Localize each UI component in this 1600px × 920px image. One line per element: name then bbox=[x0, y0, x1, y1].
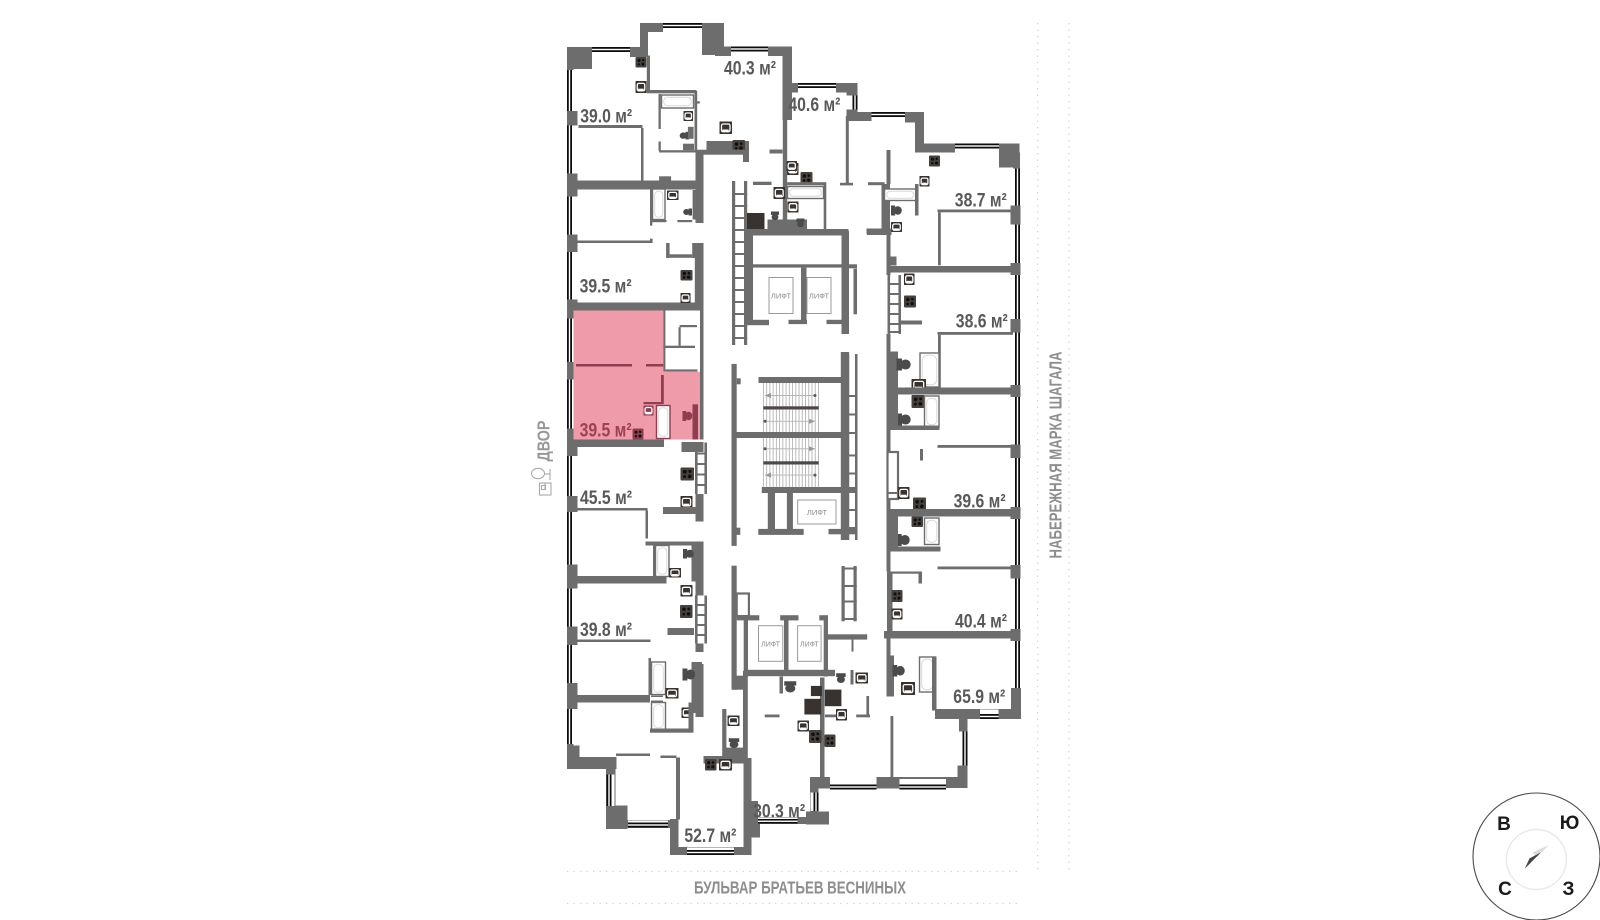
svg-text:38.7 м²: 38.7 м² bbox=[955, 189, 1007, 211]
svg-text:40.4 м²: 40.4 м² bbox=[955, 611, 1007, 633]
svg-text:39.0 м²: 39.0 м² bbox=[580, 106, 632, 128]
svg-text:65.9 м²: 65.9 м² bbox=[953, 686, 1005, 708]
svg-text:ЛИФТ: ЛИФТ bbox=[800, 642, 820, 649]
svg-text:52.7 м²: 52.7 м² bbox=[684, 825, 736, 847]
svg-text:ЛИФТ: ЛИФТ bbox=[761, 642, 781, 649]
svg-text:39.5 м²: 39.5 м² bbox=[580, 276, 632, 298]
svg-text:ДВОР: ДВОР bbox=[534, 420, 554, 461]
svg-text:39.5 м²: 39.5 м² bbox=[580, 420, 632, 442]
svg-text:С: С bbox=[1498, 879, 1512, 900]
svg-text:30.3 м²: 30.3 м² bbox=[753, 801, 805, 823]
svg-text:ЛИФТ: ЛИФТ bbox=[771, 292, 792, 301]
svg-text:ЛИФТ: ЛИФТ bbox=[809, 292, 830, 301]
svg-text:В: В bbox=[1497, 814, 1511, 835]
svg-text:Ю: Ю bbox=[1560, 813, 1580, 834]
svg-text:З: З bbox=[1563, 879, 1575, 900]
svg-text:38.6 м²: 38.6 м² bbox=[956, 311, 1008, 333]
svg-text:39.8 м²: 39.8 м² bbox=[580, 619, 632, 641]
svg-text:45.5 м²: 45.5 м² bbox=[580, 487, 632, 509]
svg-text:БУЛЬВАР БРАТЬЕВ ВЕСНИНЫХ: БУЛЬВАР БРАТЬЕВ ВЕСНИНЫХ bbox=[694, 878, 906, 898]
svg-text:ЛИФТ: ЛИФТ bbox=[807, 508, 828, 517]
svg-text:НАБЕРЕЖНАЯ МАРКА ШАГАЛА: НАБЕРЕЖНАЯ МАРКА ШАГАЛА bbox=[1046, 351, 1066, 558]
svg-text:40.6 м²: 40.6 м² bbox=[788, 94, 840, 116]
svg-text:39.6 м²: 39.6 м² bbox=[954, 490, 1006, 512]
svg-text:40.3 м²: 40.3 м² bbox=[724, 57, 776, 79]
